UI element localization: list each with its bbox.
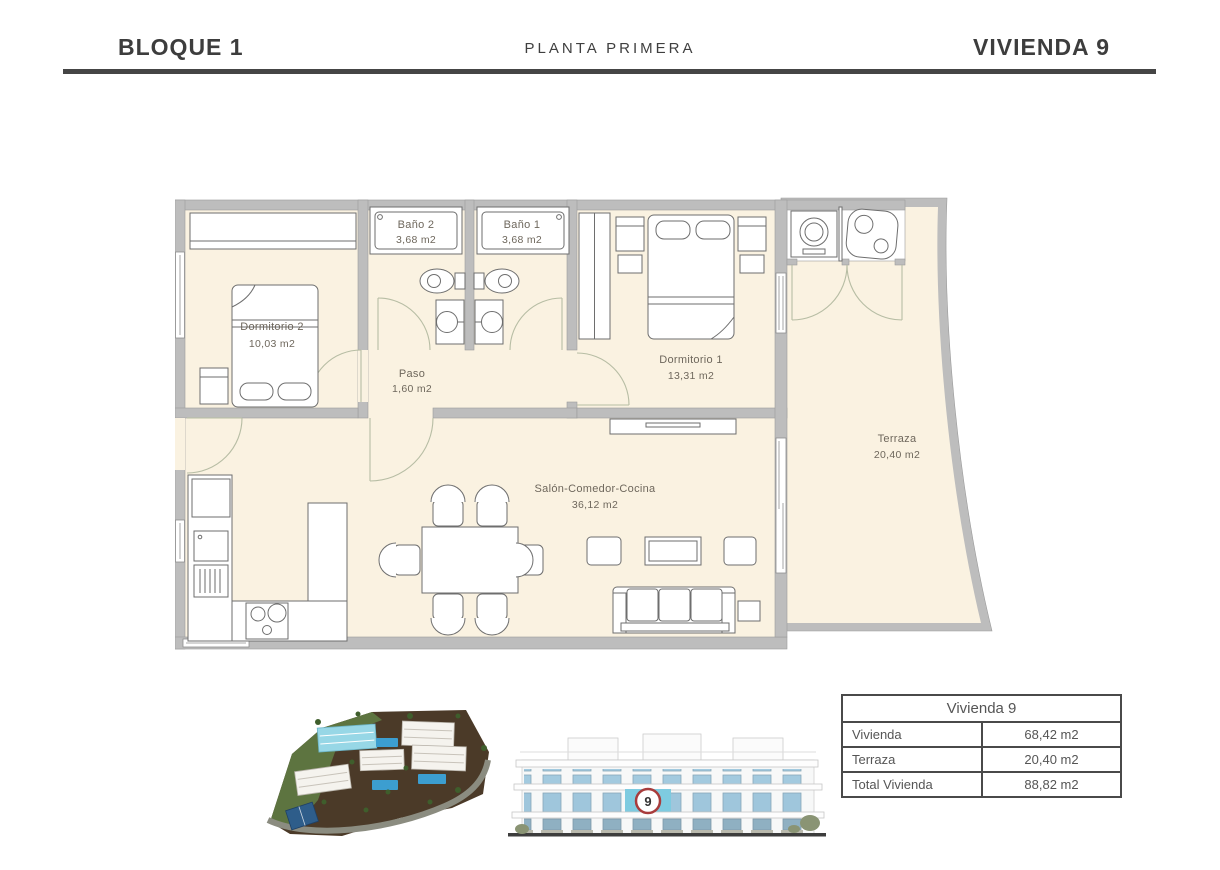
wardrobe [190, 213, 356, 249]
windows-ground [524, 818, 810, 833]
nightstand [616, 217, 644, 251]
room-area: 3,68 m2 [396, 234, 436, 246]
table-row: Total Vivienda 88,82 m2 [843, 773, 1120, 796]
room-area: 20,40 m2 [874, 449, 920, 461]
windows-floor-2 [524, 769, 810, 784]
room-area: 13,31 m2 [668, 370, 714, 382]
room-name: Baño 1 [504, 219, 541, 231]
room-name: Baño 2 [398, 219, 435, 231]
room-area: 3,68 m2 [502, 234, 542, 246]
row-value: 68,42 m2 [983, 723, 1120, 746]
building [402, 721, 455, 747]
ground-line [508, 833, 826, 837]
elevation-render: 9 [508, 722, 833, 844]
entrance-opening [175, 418, 185, 470]
side-table [724, 537, 756, 565]
site-plan-render [260, 698, 496, 846]
room-name: Paso [399, 368, 425, 380]
room-name: Dormitorio 2 [240, 321, 304, 333]
kitchen-island [308, 503, 347, 601]
side-table [587, 537, 621, 565]
room-name: Terraza [878, 433, 917, 445]
end-table [738, 601, 760, 621]
table-row: Terraza 20,40 m2 [843, 748, 1120, 773]
row-label: Total Vivienda [843, 773, 983, 796]
summary-table: Vivienda 9 Vivienda 68,42 m2 Terraza 20,… [841, 694, 1122, 798]
pool [372, 780, 398, 790]
room-area: 36,12 m2 [572, 499, 618, 511]
water-heater [845, 208, 899, 260]
room-name: Dormitorio 1 [659, 354, 723, 366]
nightstand [738, 217, 766, 251]
summary-table-title: Vivienda 9 [843, 696, 1120, 723]
nightstand [200, 368, 228, 404]
table-row: Vivienda 68,42 m2 [843, 723, 1120, 748]
roof-penthouses [568, 734, 783, 760]
dining-table [422, 527, 518, 593]
unit-title: VIVIENDA 9 [973, 34, 1110, 61]
row-value: 20,40 m2 [983, 748, 1120, 771]
room-area: 10,03 m2 [249, 338, 295, 350]
pool [376, 738, 398, 747]
slab [512, 812, 824, 818]
highlighted-building [317, 724, 377, 752]
header-rule [63, 69, 1156, 74]
building [360, 749, 405, 771]
plan-sheet: BLOQUE 1 PLANTA PRIMERA VIVIENDA 9 [0, 0, 1220, 870]
pool [418, 774, 446, 784]
dorm2-door-opening [358, 350, 368, 402]
room-name: Salón-Comedor-Cocina [535, 483, 657, 495]
cornice [516, 760, 818, 767]
row-value: 88,82 m2 [983, 773, 1120, 796]
fridge [192, 479, 230, 517]
unit-badge-number: 9 [644, 794, 651, 809]
room-area: 1,60 m2 [392, 383, 432, 395]
row-label: Terraza [843, 748, 983, 771]
building [412, 745, 467, 771]
dishwasher [194, 565, 228, 597]
row-label: Vivienda [843, 723, 983, 746]
floor-plan: Dormitorio 2 10,03 m2 Baño 2 3,68 m2 Bañ… [175, 197, 995, 655]
